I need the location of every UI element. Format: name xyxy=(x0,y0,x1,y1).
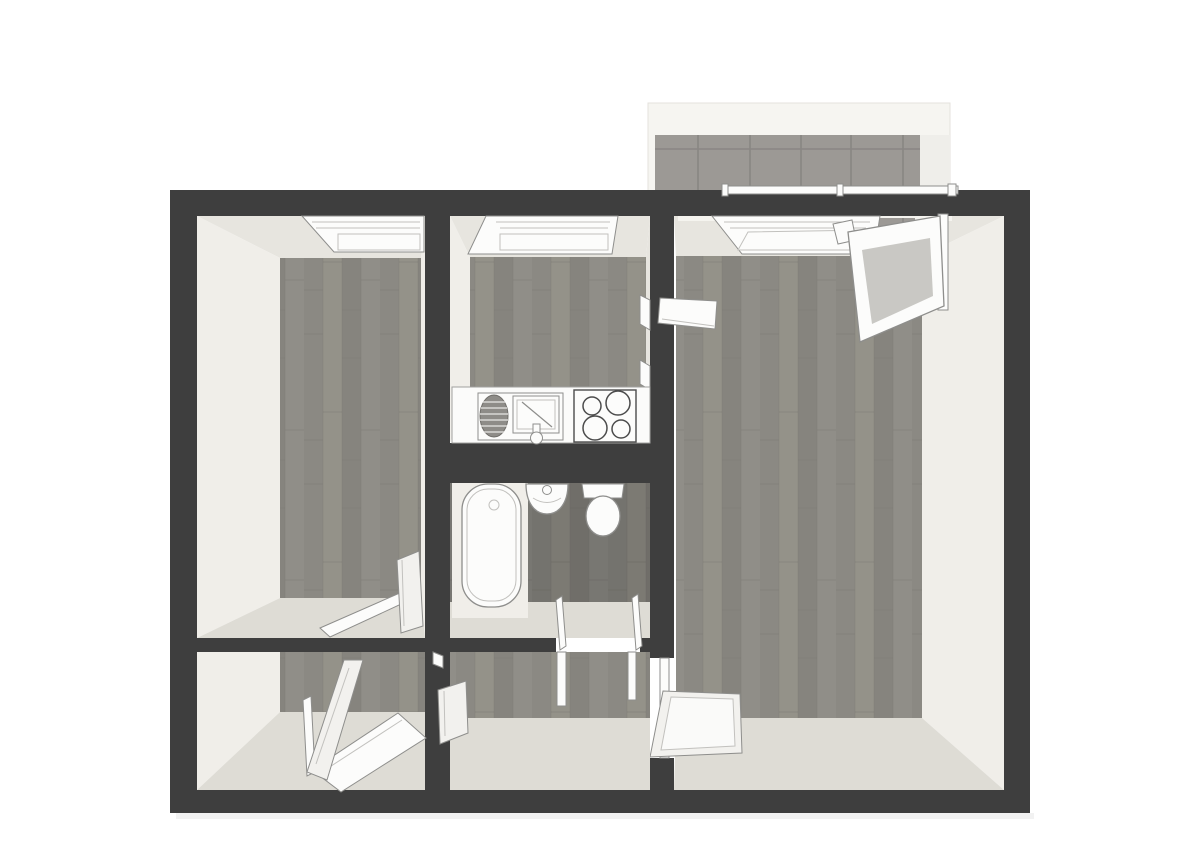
bedroom-bottom-left xyxy=(197,652,426,792)
balcony-railing xyxy=(722,184,958,196)
hallway xyxy=(433,652,650,790)
hallway-door-leaf-panel xyxy=(661,697,735,750)
railing-post-left xyxy=(722,184,728,196)
window-sill xyxy=(338,234,420,250)
open-kitchen-door-leaf xyxy=(658,298,717,329)
kitchen xyxy=(450,216,650,444)
outer-wall-right xyxy=(1004,190,1030,813)
burner-large-1 xyxy=(606,391,630,415)
wall-drop-shadow xyxy=(176,813,1034,819)
burner-small-1 xyxy=(583,397,601,415)
bathtub xyxy=(462,484,521,607)
outer-wall-bottom xyxy=(170,790,1030,813)
balcony-side-wall xyxy=(920,135,950,192)
burner-small-2 xyxy=(612,420,630,438)
door-leaf xyxy=(397,551,423,633)
living-room xyxy=(650,214,1004,790)
bedroom-left-skirt-right xyxy=(421,216,425,638)
washbasin-faucet xyxy=(543,486,552,495)
wall-horizontal-left xyxy=(170,638,556,652)
kitchen-door-leaf xyxy=(658,298,717,329)
hallway-floor xyxy=(450,652,650,718)
bedroom-left xyxy=(197,216,425,638)
bathroom xyxy=(450,483,650,650)
kitchen-counter xyxy=(452,387,650,444)
stove-cooktop xyxy=(574,390,636,442)
hall-bath-door-jamb-left xyxy=(557,652,566,706)
hall-bath-door-jamb-right xyxy=(628,652,636,700)
floor-plan-canvas xyxy=(0,0,1200,853)
inner-wall-right-vertical-upper xyxy=(650,216,674,658)
toilet-bowl xyxy=(586,496,620,536)
balcony xyxy=(648,103,950,192)
hall-open-door-leaf xyxy=(438,681,468,744)
wall-kitchen-bathroom xyxy=(425,443,674,483)
kitchen-window xyxy=(468,216,618,254)
hallway-skirt-bottom xyxy=(450,718,650,790)
window-sill xyxy=(500,234,608,250)
outer-wall-left xyxy=(170,190,197,813)
bedroom-left-skirt-left xyxy=(197,216,280,638)
bedroom-left-floor xyxy=(280,258,421,598)
kitchen-door-jamb-top xyxy=(640,295,650,330)
kitchen-floor xyxy=(470,257,646,387)
railing-post-mid xyxy=(837,184,843,196)
railing-post-right xyxy=(948,184,956,196)
floor-plan-svg xyxy=(0,0,1200,853)
burner-large-2 xyxy=(583,416,607,440)
inner-wall-right-vertical-lower xyxy=(650,758,674,790)
balcony-tiles xyxy=(655,135,920,192)
faucet-knob xyxy=(531,432,543,444)
wall-horizontal-right xyxy=(640,638,674,652)
